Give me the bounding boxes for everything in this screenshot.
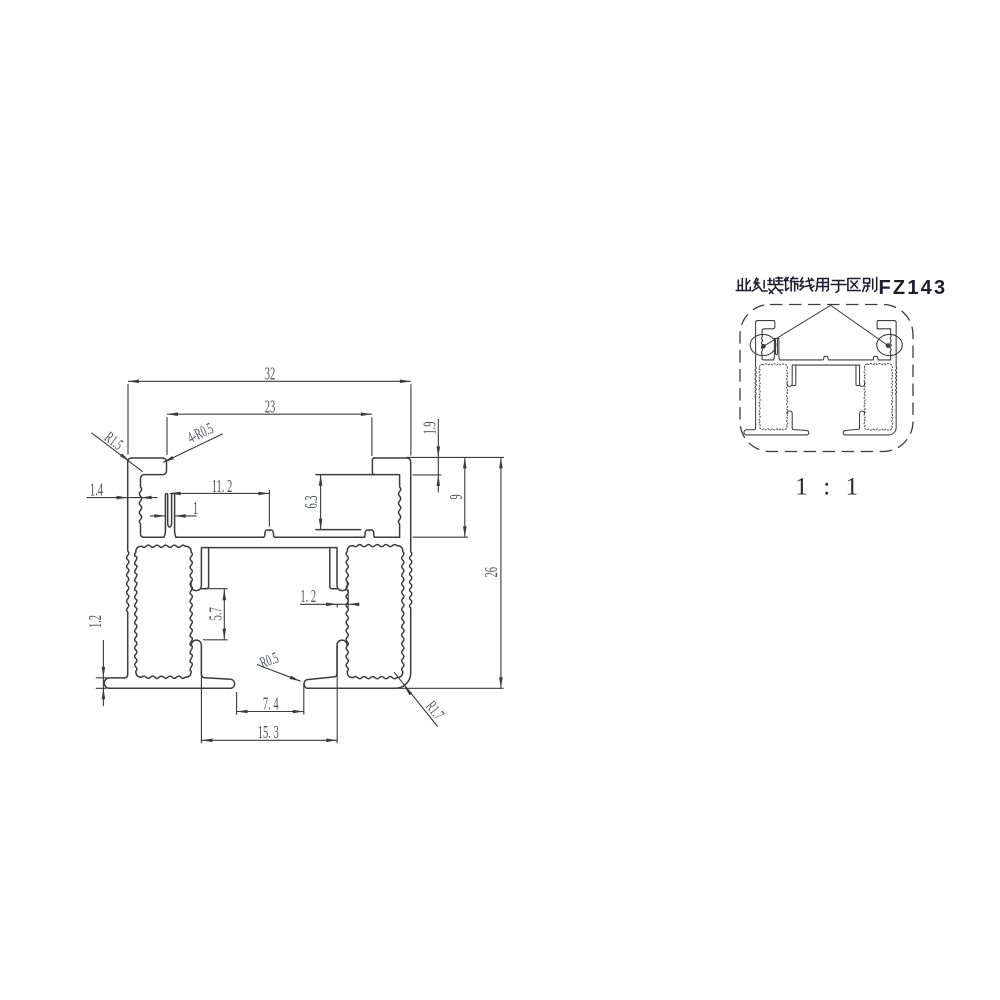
svg-text:1. 2: 1. 2 [300,587,316,606]
svg-text:1.4: 1.4 [90,481,103,500]
svg-text:23: 23 [265,398,275,417]
svg-text:7. 4: 7. 4 [263,695,279,714]
svg-text:5.7: 5.7 [207,607,226,620]
svg-text:9: 9 [447,494,466,499]
svg-text:1.9: 1.9 [421,421,440,434]
svg-text:15. 3: 15. 3 [258,724,279,743]
svg-text:11. 2: 11. 2 [212,477,233,496]
svg-text:6.3: 6.3 [302,495,321,508]
svg-text:FZ143: FZ143 [879,277,948,299]
svg-text:32: 32 [265,365,275,384]
svg-text:1 : 1: 1 : 1 [795,474,862,501]
svg-text:1.2: 1.2 [86,615,105,628]
svg-text:26: 26 [482,567,501,577]
svg-text:1: 1 [193,499,198,518]
